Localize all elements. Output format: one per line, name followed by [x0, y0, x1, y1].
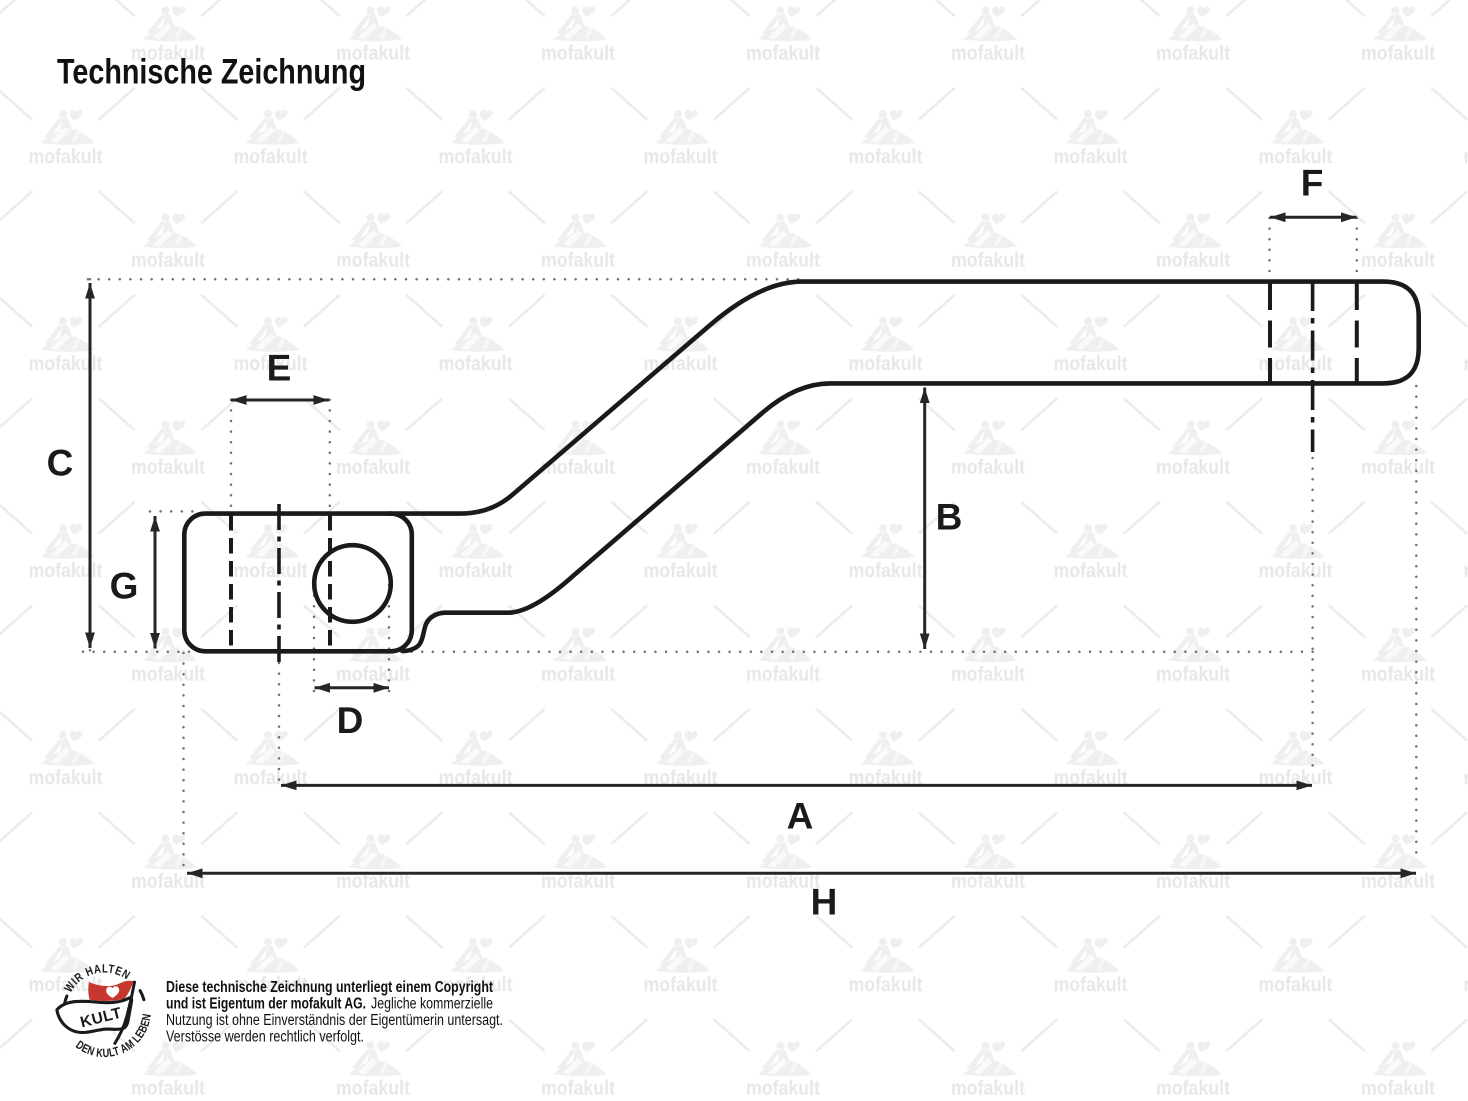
svg-text:F: F [1301, 163, 1324, 204]
svg-text:H: H [811, 882, 838, 923]
svg-text:und ist Eigentum der mofakult: und ist Eigentum der mofakult AG. [166, 996, 366, 1013]
svg-text:B: B [936, 497, 963, 538]
svg-text:Nutzung ist ohne Einverständni: Nutzung ist ohne Einverständnis der Eige… [166, 1012, 503, 1029]
svg-text:A: A [787, 796, 814, 837]
svg-text:Jegliche kommerzielle: Jegliche kommerzielle [371, 996, 493, 1013]
svg-text:E: E [267, 348, 292, 389]
svg-text:G: G [110, 566, 139, 607]
svg-text:Technische Zeichnung: Technische Zeichnung [57, 53, 366, 92]
svg-text:Diese technische Zeichnung unt: Diese technische Zeichnung unterliegt ei… [166, 979, 493, 996]
svg-text:C: C [47, 443, 74, 484]
svg-text:D: D [337, 700, 364, 741]
svg-text:Verstösse werden rechtlich ver: Verstösse werden rechtlich verfolgt. [166, 1029, 364, 1046]
